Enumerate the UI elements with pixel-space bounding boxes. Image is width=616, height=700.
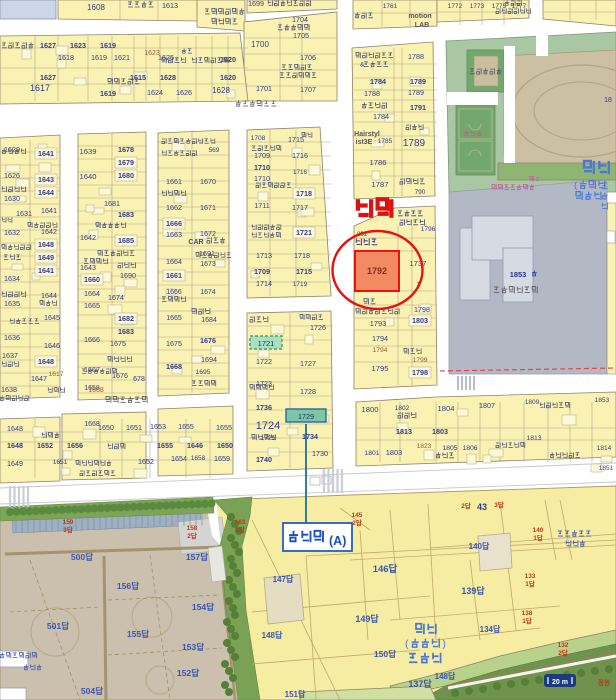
svg-text:1629: 1629 [4, 145, 20, 154]
svg-text:1804: 1804 [438, 404, 455, 413]
svg-text:1643: 1643 [80, 263, 96, 272]
svg-text:156답: 156답 [117, 580, 139, 591]
svg-text:1772: 1772 [448, 3, 463, 10]
svg-text:1709: 1709 [254, 267, 270, 276]
svg-text:1636: 1636 [4, 333, 20, 342]
svg-text:1675: 1675 [110, 339, 126, 348]
svg-text:504답: 504답 [81, 685, 103, 696]
svg-text:146답: 146답 [373, 563, 398, 575]
svg-text:1710: 1710 [254, 174, 270, 183]
svg-text:1794: 1794 [372, 334, 388, 343]
svg-text:1789: 1789 [408, 88, 424, 97]
svg-text:1646: 1646 [187, 441, 203, 450]
svg-text:1628: 1628 [212, 86, 230, 95]
svg-text:1713: 1713 [256, 251, 272, 260]
svg-text:1643: 1643 [38, 175, 54, 184]
svg-text:140답: 140답 [469, 541, 490, 551]
svg-text:154답: 154답 [192, 601, 214, 612]
svg-text:134답: 134답 [480, 624, 501, 634]
svg-text:163: 163 [235, 519, 246, 526]
svg-text:1794: 1794 [372, 347, 387, 354]
svg-text:1789: 1789 [403, 138, 426, 149]
svg-text:1801: 1801 [364, 450, 379, 457]
svg-text:3답: 3답 [235, 525, 245, 534]
svg-text:1729: 1729 [298, 412, 314, 421]
svg-text:1683: 1683 [118, 210, 134, 219]
svg-text:1652: 1652 [37, 441, 53, 450]
svg-text:1706: 1706 [300, 53, 316, 62]
svg-text:145: 145 [352, 512, 363, 519]
svg-text:1619: 1619 [100, 89, 116, 98]
svg-text:1666: 1666 [166, 219, 182, 228]
svg-text:1728: 1728 [300, 387, 316, 396]
svg-text:147답: 147답 [273, 574, 294, 584]
svg-text:1674: 1674 [200, 289, 216, 296]
svg-text:137답: 137답 [408, 678, 432, 689]
svg-text:1787: 1787 [372, 180, 389, 189]
svg-text:155답: 155답 [127, 628, 149, 639]
svg-text:1624: 1624 [147, 88, 163, 97]
svg-text:1665: 1665 [166, 315, 182, 322]
svg-text:1650: 1650 [98, 423, 114, 432]
svg-text:1705: 1705 [293, 31, 309, 40]
svg-text:1658: 1658 [191, 455, 206, 462]
svg-text:149답: 149답 [355, 613, 379, 624]
svg-text:1641: 1641 [38, 149, 54, 158]
svg-text:1708: 1708 [251, 135, 266, 142]
svg-text:1641: 1641 [41, 206, 57, 215]
svg-text:1681: 1681 [104, 199, 120, 208]
svg-text:1721: 1721 [296, 228, 312, 237]
svg-text:1644: 1644 [41, 291, 57, 300]
svg-text:1628: 1628 [160, 73, 176, 82]
svg-text:1813: 1813 [526, 435, 541, 442]
svg-text:1664: 1664 [166, 257, 182, 266]
svg-text:2답: 2답 [187, 531, 197, 540]
svg-text:132: 132 [558, 642, 569, 649]
svg-text:1803: 1803 [432, 427, 448, 436]
svg-text:1658: 1658 [84, 385, 100, 392]
svg-text:1740: 1740 [256, 455, 272, 464]
svg-text:1795: 1795 [372, 364, 389, 373]
svg-text:1637: 1637 [2, 351, 18, 360]
svg-text:1792: 1792 [367, 266, 387, 276]
svg-text:1661: 1661 [166, 271, 182, 280]
svg-text:501답: 501답 [47, 620, 69, 631]
svg-text:1641: 1641 [38, 266, 54, 275]
svg-text:1823: 1823 [417, 443, 432, 450]
svg-text:1788: 1788 [408, 52, 424, 61]
svg-text:1685: 1685 [118, 236, 134, 245]
svg-text:1626: 1626 [4, 171, 20, 180]
svg-text:1710: 1710 [254, 163, 270, 172]
svg-text:1674: 1674 [108, 293, 124, 302]
svg-text:1644: 1644 [38, 188, 54, 197]
svg-text:1666: 1666 [84, 335, 100, 344]
svg-text:1679: 1679 [118, 158, 134, 167]
svg-text:1642: 1642 [80, 233, 96, 242]
svg-text:1785: 1785 [378, 138, 393, 145]
svg-text:1답: 1답 [522, 616, 532, 625]
svg-text:1642: 1642 [41, 227, 57, 236]
svg-text:1619: 1619 [100, 41, 116, 50]
svg-text:1608: 1608 [87, 3, 105, 12]
svg-text:1627: 1627 [40, 41, 56, 50]
svg-text:1789: 1789 [410, 77, 426, 86]
svg-text:1809: 1809 [525, 399, 540, 406]
svg-text:1640: 1640 [80, 172, 97, 181]
svg-text:1675: 1675 [166, 339, 182, 348]
svg-text:1649: 1649 [7, 459, 23, 468]
svg-text:1652: 1652 [138, 457, 154, 466]
svg-text:1725: 1725 [261, 435, 276, 442]
svg-text:1803: 1803 [386, 448, 402, 457]
svg-text:1653: 1653 [150, 422, 166, 431]
svg-text:1682: 1682 [118, 314, 134, 323]
svg-text:152답: 152답 [177, 667, 199, 678]
svg-text:1645: 1645 [44, 313, 60, 322]
svg-text:2답: 2답 [461, 501, 471, 510]
svg-text:1654: 1654 [171, 454, 187, 463]
svg-text:1619: 1619 [91, 53, 107, 62]
svg-text:1618: 1618 [58, 53, 74, 62]
svg-text:1717: 1717 [292, 203, 308, 212]
svg-text:정원: 정원 [598, 678, 610, 687]
svg-text:2답: 2답 [352, 518, 362, 527]
svg-text:138: 138 [522, 610, 533, 617]
svg-text:150답: 150답 [374, 648, 396, 659]
svg-text:1799: 1799 [412, 357, 427, 364]
svg-text:1695: 1695 [195, 369, 210, 376]
svg-text:ist3E: ist3E [356, 139, 373, 146]
svg-text:1617: 1617 [30, 83, 50, 93]
svg-text:1647: 1647 [31, 374, 47, 383]
svg-text:1784: 1784 [373, 112, 389, 121]
svg-text:1답: 1답 [525, 579, 535, 588]
svg-text:1803: 1803 [412, 316, 428, 325]
svg-text:1665: 1665 [84, 301, 100, 310]
svg-text:1853: 1853 [595, 397, 610, 404]
svg-text:1716: 1716 [292, 151, 308, 160]
svg-text:1626: 1626 [176, 88, 192, 97]
svg-text:1814: 1814 [597, 445, 612, 452]
svg-text:790: 790 [415, 189, 426, 196]
svg-text:678: 678 [133, 376, 145, 383]
svg-text:1663: 1663 [166, 230, 182, 239]
svg-text:1627: 1627 [40, 73, 56, 82]
svg-text:148답: 148답 [435, 671, 456, 681]
svg-text:1694: 1694 [201, 355, 217, 364]
svg-text:1699: 1699 [248, 0, 264, 8]
svg-text:): ) [442, 638, 446, 650]
svg-text:1617: 1617 [48, 371, 63, 378]
svg-text:1680: 1680 [118, 171, 134, 180]
svg-text:1670: 1670 [200, 177, 216, 186]
svg-text:1668: 1668 [166, 362, 182, 371]
svg-text:1656: 1656 [67, 441, 83, 450]
svg-text:500답: 500답 [71, 551, 93, 562]
svg-text:1714: 1714 [256, 279, 272, 288]
svg-text:Hairstyl: Hairstyl [354, 131, 380, 138]
svg-text:1621: 1621 [114, 53, 130, 62]
svg-text:1655: 1655 [178, 424, 194, 431]
svg-text:2답: 2답 [558, 648, 568, 657]
svg-text:1638: 1638 [1, 385, 17, 394]
svg-text:1676: 1676 [200, 336, 216, 345]
svg-text:1631: 1631 [16, 209, 32, 218]
svg-text:1798: 1798 [412, 368, 428, 377]
svg-text:1704: 1704 [292, 15, 308, 24]
svg-text:1613: 1613 [162, 1, 178, 10]
svg-text:1648: 1648 [38, 240, 54, 249]
svg-text:1851: 1851 [599, 465, 614, 472]
svg-text:1649: 1649 [38, 253, 54, 262]
svg-text:1806: 1806 [462, 445, 477, 452]
svg-text:1673: 1673 [200, 261, 216, 268]
svg-text:1715: 1715 [288, 135, 304, 144]
svg-text:1716: 1716 [293, 169, 308, 176]
svg-text:1719: 1719 [293, 281, 308, 288]
svg-text:1646: 1646 [44, 341, 60, 350]
svg-text:1651: 1651 [53, 459, 68, 466]
svg-text:1800: 1800 [362, 405, 379, 414]
svg-text:1718: 1718 [294, 251, 310, 260]
svg-text:157답: 157답 [186, 551, 208, 562]
svg-text:2: 2 [536, 177, 539, 183]
svg-text:1724: 1724 [256, 420, 280, 432]
svg-text:1711: 1711 [254, 201, 269, 210]
svg-text:1853: 1853 [510, 270, 526, 279]
svg-text:1684: 1684 [201, 317, 217, 324]
svg-text:1662: 1662 [166, 203, 182, 212]
svg-text:158: 158 [187, 525, 198, 532]
svg-text:1678: 1678 [118, 145, 134, 154]
svg-text:1659: 1659 [214, 454, 230, 463]
svg-text:1634: 1634 [4, 274, 20, 283]
svg-text:1655: 1655 [216, 423, 232, 432]
svg-text:3답: 3답 [63, 525, 73, 534]
svg-text:1798: 1798 [414, 305, 430, 314]
svg-text:1답: 1답 [533, 533, 543, 542]
svg-text:133: 133 [525, 573, 536, 580]
svg-text:1691: 1691 [199, 249, 215, 258]
svg-text:(: ( [405, 638, 409, 650]
svg-text:1650: 1650 [217, 441, 233, 450]
svg-text:1648: 1648 [38, 357, 54, 366]
svg-text:1722: 1722 [256, 357, 272, 366]
svg-text:140: 140 [533, 527, 544, 534]
svg-text:139답: 139답 [461, 585, 485, 596]
svg-text:1730: 1730 [312, 449, 328, 458]
svg-text:1737: 1737 [410, 259, 427, 268]
svg-text:&: & [360, 62, 365, 69]
svg-text:1690: 1690 [120, 271, 136, 280]
svg-text:1661: 1661 [166, 177, 182, 186]
svg-text:1672: 1672 [200, 229, 216, 238]
svg-text:3답: 3답 [494, 500, 504, 509]
svg-text:1632: 1632 [4, 228, 20, 237]
svg-text:1683: 1683 [118, 327, 134, 336]
svg-text:1734: 1734 [302, 432, 318, 441]
svg-text:1786: 1786 [370, 158, 387, 167]
svg-text:1761: 1761 [383, 3, 398, 10]
svg-text:LAB: LAB [415, 22, 429, 29]
svg-text:1709: 1709 [254, 151, 270, 160]
svg-text:1620: 1620 [220, 73, 236, 82]
svg-text:1788: 1788 [364, 89, 380, 98]
svg-text:1635: 1635 [4, 299, 20, 308]
svg-text:1651: 1651 [126, 423, 142, 432]
svg-text:1773: 1773 [470, 3, 485, 10]
svg-text:1813: 1813 [396, 427, 412, 436]
svg-text:1707: 1707 [300, 85, 316, 94]
svg-text:18: 18 [604, 97, 612, 104]
svg-text:1784: 1784 [370, 77, 386, 86]
svg-text:1805: 1805 [442, 445, 457, 452]
svg-text:1648: 1648 [7, 424, 23, 433]
svg-text:1718: 1718 [296, 189, 312, 198]
svg-text:1660: 1660 [84, 275, 100, 284]
svg-text:1623: 1623 [70, 41, 86, 50]
svg-text:1721: 1721 [258, 339, 275, 348]
svg-text:CAR: CAR [188, 239, 203, 246]
svg-text:1700: 1700 [251, 40, 269, 49]
svg-text:1666: 1666 [166, 289, 182, 296]
svg-text:1807: 1807 [479, 401, 495, 410]
svg-text:1796: 1796 [421, 226, 436, 233]
svg-text:569: 569 [209, 147, 220, 154]
svg-text:148답: 148답 [262, 630, 283, 640]
svg-text:(A): (A) [329, 534, 346, 548]
svg-text:1727: 1727 [300, 359, 316, 368]
svg-text:1701: 1701 [256, 84, 272, 93]
svg-text:151답: 151답 [285, 689, 306, 699]
svg-text:43: 43 [477, 502, 487, 512]
svg-text:1802: 1802 [395, 405, 410, 412]
svg-text:1630: 1630 [4, 194, 20, 203]
svg-text:1648: 1648 [7, 441, 23, 450]
svg-text:1736: 1736 [256, 403, 272, 412]
svg-text:motion: motion [408, 13, 431, 20]
svg-text:1715: 1715 [296, 267, 312, 276]
svg-text:1671: 1671 [200, 203, 216, 212]
svg-text:1664: 1664 [84, 289, 100, 298]
svg-text:153답: 153답 [182, 641, 204, 652]
svg-text:1791: 1791 [410, 103, 426, 112]
svg-text:20 m: 20 m [552, 679, 568, 686]
svg-text:1639: 1639 [80, 147, 97, 156]
svg-text:159: 159 [63, 519, 74, 526]
svg-text:1726: 1726 [310, 323, 326, 332]
svg-text:1793: 1793 [370, 319, 386, 328]
svg-text:1655: 1655 [157, 441, 173, 450]
